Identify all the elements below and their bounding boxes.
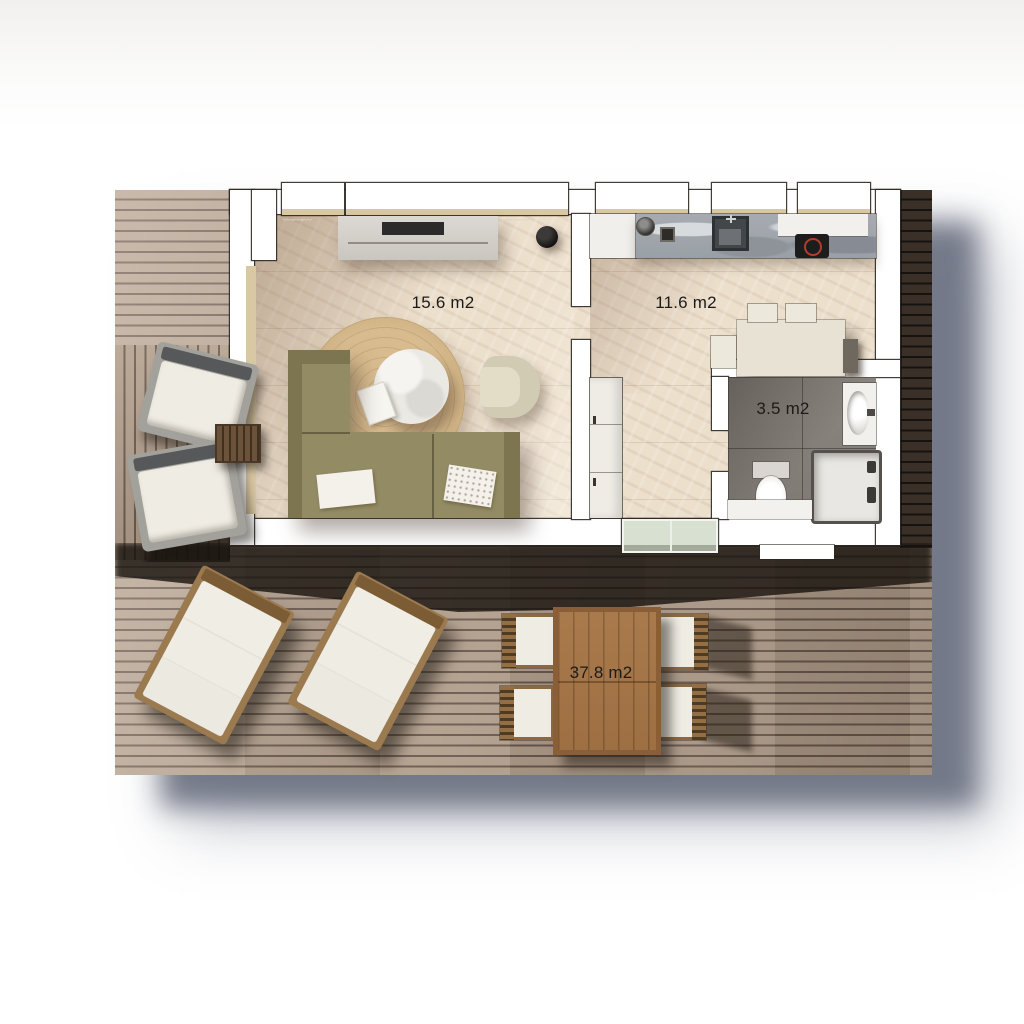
dining-chair — [786, 304, 816, 322]
wall-partition-lower — [572, 340, 590, 519]
basin-tap-icon — [867, 409, 875, 416]
door-frame-mullion — [670, 521, 672, 551]
bathroom-vanity — [728, 500, 812, 519]
sink-basin — [719, 229, 741, 245]
kitchen-sink — [712, 216, 749, 251]
faucet-icon — [726, 218, 736, 220]
wardrobe-handle — [593, 478, 596, 486]
sofa-seam — [302, 432, 350, 434]
chair-slats — [694, 614, 708, 670]
dining-chair — [748, 304, 777, 322]
tv-icon — [382, 222, 444, 235]
wall-partition-upper — [572, 214, 590, 306]
curtain-symbol-2: ﹏﹏﹏ — [500, 211, 570, 223]
wall-bathroom-left-a — [712, 377, 728, 430]
outdoor-side-table — [215, 424, 261, 463]
shower-mixer-icon — [867, 461, 876, 473]
pot-icon — [636, 217, 655, 236]
wall-bottom — [230, 519, 900, 545]
fridge-cabinet — [590, 214, 636, 258]
patio-chair — [500, 686, 554, 740]
dining-chair — [711, 336, 736, 368]
chair-slats — [692, 684, 706, 740]
wardrobe-seam — [590, 472, 622, 473]
deck-shaded-strip-right — [900, 190, 932, 548]
induction-hob — [795, 234, 829, 258]
curtain-symbol-1: ﹏﹏﹏ — [283, 211, 317, 223]
wardrobe-seam — [590, 424, 622, 425]
bathroom-sink-unit — [843, 383, 876, 445]
dining-table — [737, 320, 845, 376]
patio-chair — [502, 614, 556, 668]
wall-pier-entry — [252, 190, 276, 260]
sofa-armrest-left — [288, 350, 302, 518]
living-room-area-label: 15.6 m2 — [412, 293, 475, 313]
tv-console — [338, 216, 498, 260]
dining-bench — [843, 339, 858, 373]
console-shelf-line — [348, 242, 488, 244]
pillow — [316, 469, 375, 509]
sliding-glass-door — [622, 519, 718, 553]
rear-door-threshold — [760, 545, 834, 559]
wall-bathroom-left-b — [712, 472, 728, 519]
terrace-area-label: 37.8 m2 — [570, 663, 633, 683]
planter-icon — [536, 226, 558, 248]
outdoor-armchair-cushion — [137, 457, 238, 544]
small-appliance-icon — [660, 227, 675, 242]
bathroom-basin — [847, 391, 869, 435]
chair-slats — [500, 686, 514, 740]
kitchen-upper-cabinet — [778, 214, 868, 236]
sofa-backrest-top — [288, 350, 350, 364]
window-kitchen-1 — [596, 183, 688, 215]
chair-slats — [502, 614, 516, 668]
wardrobe-handle — [593, 416, 596, 424]
pillow — [443, 464, 496, 507]
hob-burner-ring — [804, 238, 822, 256]
sofa-l-shape — [288, 350, 520, 518]
shower-cabin — [811, 450, 882, 524]
patio-chair — [654, 614, 708, 670]
sofa-armrest-right — [504, 432, 520, 518]
floor-plan-render: ﹏﹏﹏ ﹏﹏﹏ ﹏﹏﹏ 15.6 m2 — [0, 0, 1024, 1024]
bathroom-area-label: 3.5 m2 — [756, 399, 809, 419]
shower-head-icon — [867, 487, 876, 503]
hall-wardrobe — [590, 378, 622, 518]
kitchen-area-label: 11.6 m2 — [655, 293, 717, 313]
sofa-seam — [432, 434, 434, 518]
